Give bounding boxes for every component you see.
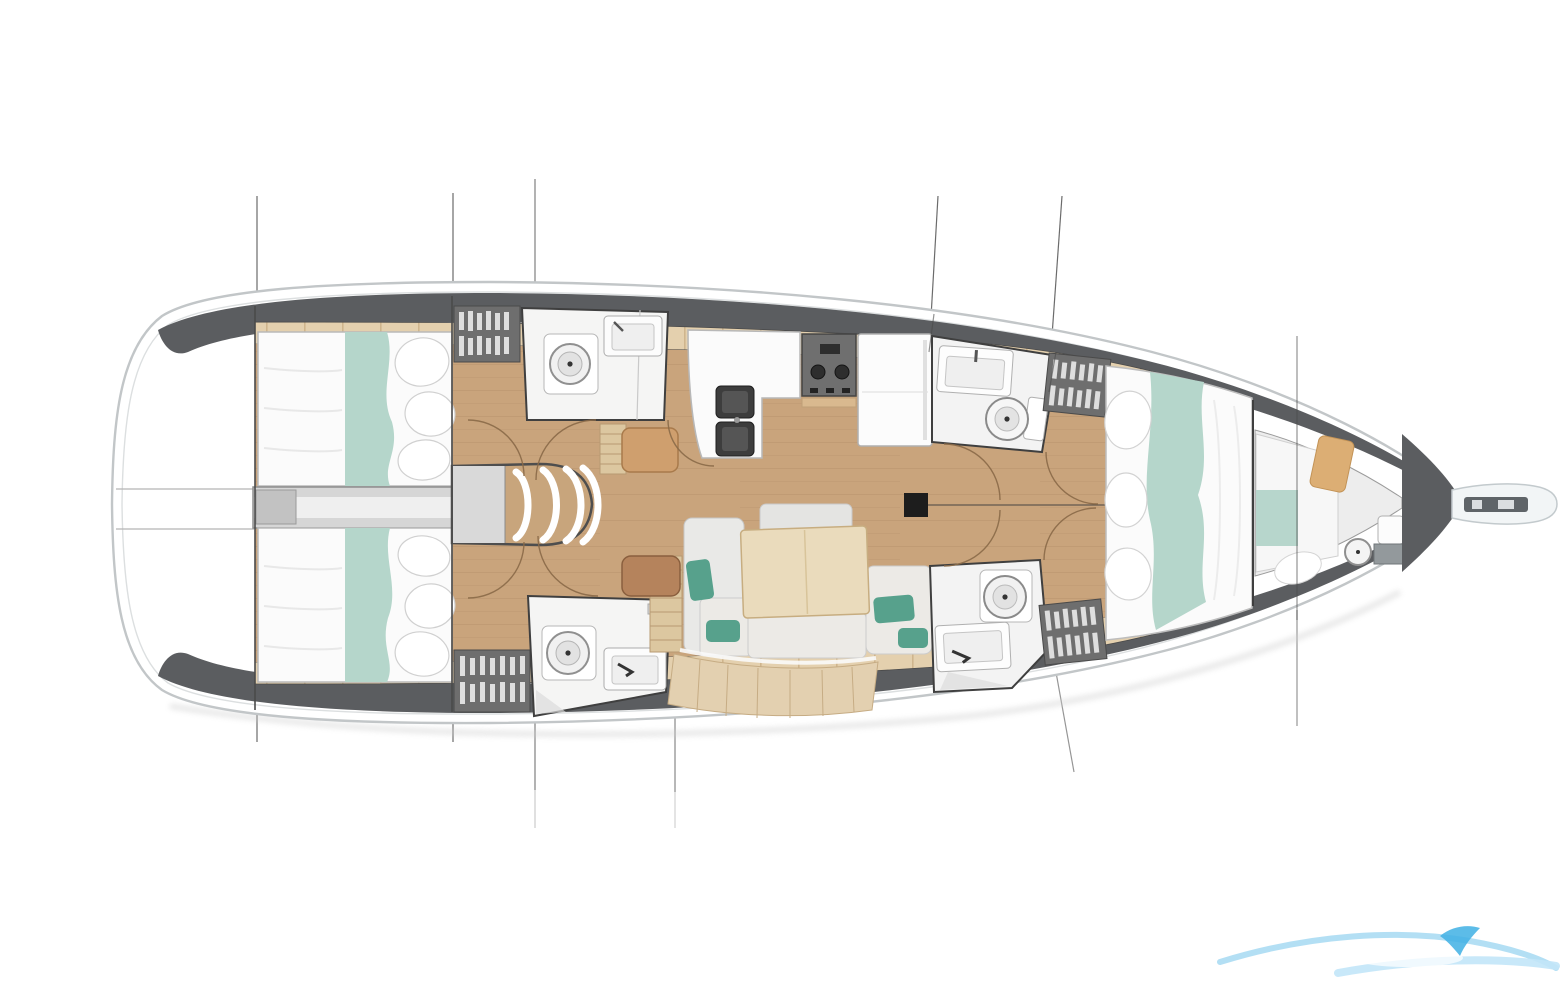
- forepeak-toilet-drain: [1356, 550, 1360, 554]
- wave-logo-watermark: [1220, 926, 1556, 973]
- anchor-roller-slot: [1472, 500, 1482, 509]
- companionway-steps: [452, 464, 598, 545]
- burner: [811, 365, 825, 379]
- mast: [904, 493, 928, 517]
- burner: [835, 365, 849, 379]
- aft-cabin-starboard: [258, 528, 458, 682]
- toilet-drain: [1002, 594, 1007, 599]
- faucet-icon: [976, 350, 977, 362]
- wardrobe-forward-port: [1043, 353, 1111, 417]
- v-berth-teal-runner: [1147, 372, 1206, 630]
- sink: [604, 316, 662, 356]
- aft-bed-starboard-teal-runner: [345, 528, 392, 682]
- aft-bed-port-teal-runner: [345, 332, 394, 486]
- wardrobe-aft-starboard: [454, 650, 530, 712]
- dinette-table: [741, 526, 870, 618]
- stove-shelf: [802, 398, 856, 407]
- pillow: [1105, 473, 1147, 527]
- engine-hatch: [256, 490, 296, 524]
- toilet: [544, 334, 598, 394]
- toilet: [986, 397, 1049, 441]
- side-table-brown: [622, 556, 680, 596]
- fridge-box: [858, 334, 932, 446]
- toilet-drain: [1004, 416, 1009, 421]
- logo-text-glow: [1353, 949, 1463, 967]
- stove-knob: [842, 388, 850, 393]
- bow-anchor-platform: [1452, 484, 1557, 524]
- stove-knob: [826, 388, 834, 393]
- toilet: [542, 626, 596, 680]
- floorplan-page: [0, 0, 1560, 985]
- engine-compartment: [253, 487, 453, 528]
- sink-basin: [943, 631, 1002, 664]
- stove-knob: [810, 388, 818, 393]
- settee-cushion-bottom: [748, 612, 866, 658]
- wardrobe-forward-starboard: [1039, 599, 1107, 665]
- toilet-drain: [567, 361, 572, 366]
- fridge-handle: [923, 340, 927, 440]
- sink: [604, 648, 666, 690]
- stove-vent: [820, 344, 840, 354]
- stove: [802, 334, 856, 407]
- forepeak-teal-blanket: [1256, 490, 1298, 546]
- faucet-icon: [734, 417, 740, 423]
- stove-top: [802, 334, 856, 396]
- aft-head-port: [522, 308, 668, 420]
- forward-cabin: [1100, 366, 1252, 640]
- forepeak-locker: [1374, 544, 1406, 564]
- sink: [936, 345, 1013, 396]
- refrigerator: [858, 334, 932, 446]
- boat-floorplan-svg: [0, 0, 1560, 985]
- aft-cabin-port: [258, 332, 458, 486]
- steps-landing: [453, 466, 505, 543]
- forward-head-port: [932, 336, 1058, 452]
- sink-basin: [612, 656, 658, 684]
- sink: [935, 622, 1011, 672]
- toilet-drain: [565, 650, 570, 655]
- anchor-roller-slot: [1498, 500, 1514, 509]
- forepeak-sink: [1378, 516, 1404, 544]
- wardrobe-box: [1039, 599, 1107, 665]
- toilet: [980, 570, 1032, 622]
- wardrobe-aft-port: [454, 306, 520, 362]
